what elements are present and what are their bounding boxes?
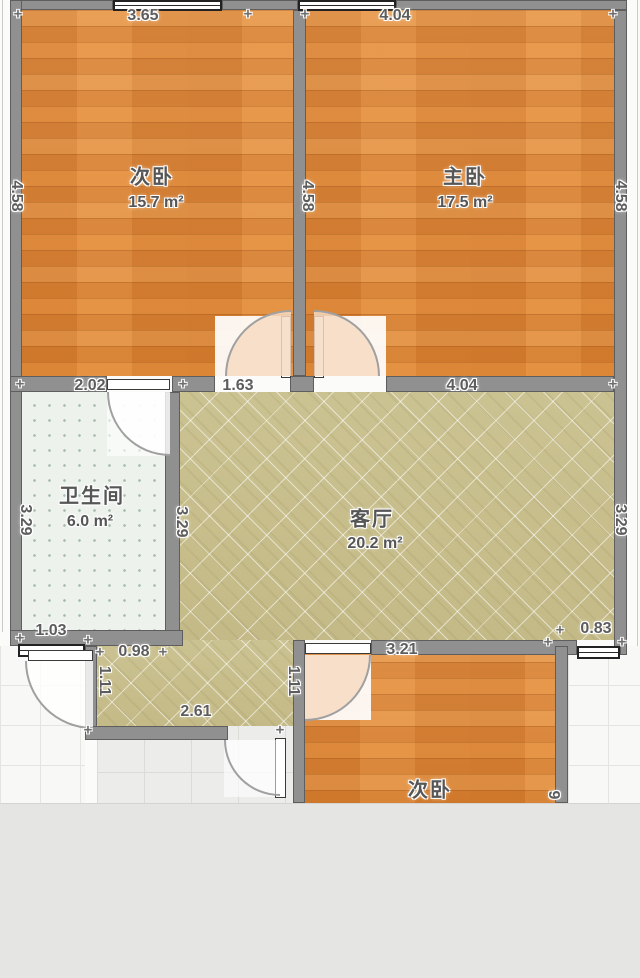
dim-label-living-right-height: 3.29 [611,504,629,535]
dimension-tick: + [618,634,626,650]
outside-right-floor [568,646,640,803]
dimension-tick: + [159,644,167,660]
room-label-bedroom-top-right: 主卧 [443,161,487,190]
dim-label-entry-left-height: 1.11 [95,666,113,696]
door-leaf [305,643,371,654]
dim-label-bedroom-bottom-height-partial: 9 [544,791,562,800]
extension-line [637,0,638,646]
area-label-bedroom-top-right: 17.5 m² [437,194,492,212]
dim-label-bathroom-width: 2.02 [74,377,105,395]
dim-label-bedroom-bottom-width: 3.21 [386,641,417,659]
door-leaf [107,379,170,390]
wall [555,646,568,803]
room-label-bedroom-bottom: 次卧 [408,774,452,803]
dim-label-bedroom-tl-width: 3.65 [127,7,158,25]
dimension-tick: + [96,644,104,660]
wall [85,726,228,740]
room-label-living-room: 客厅 [350,503,394,532]
dim-label-entry-bottom-width: 2.61 [180,703,211,721]
dimension-tick: + [556,622,564,638]
wall [10,0,113,10]
dimension-tick: + [16,630,24,646]
dim-label-right-wall-height: 4.58 [611,180,629,211]
dimension-tick: + [276,722,284,738]
dim-label-living-width: 4.04 [446,377,477,395]
area-label-living-room: 20.2 m² [347,535,402,553]
dim-label-bedroom-tr-width: 4.04 [379,7,410,25]
dim-label-entry-top-width: 0.98 [118,643,149,661]
wall [10,0,22,646]
window [577,646,620,659]
dimension-tick: + [544,634,552,650]
dim-label-bathroom-right-height: 3.29 [172,506,190,537]
dimension-tick: + [179,376,187,392]
dim-label-bathroom-bottom-width: 1.03 [35,622,66,640]
living-room-floor [180,392,614,640]
wall [293,640,305,803]
dimension-tick: + [14,6,22,22]
dimension-tick: + [16,376,24,392]
dim-label-left-wall-height: 4.58 [7,180,25,211]
wall [386,376,614,392]
wall [614,10,627,655]
wall [222,0,298,10]
dim-label-right-offset-width: 0.83 [580,620,611,638]
dimension-tick: + [244,6,252,22]
dim-label-hall-gap-width: 1.63 [222,377,253,395]
room-label-bathroom: 卫生间 [59,480,125,509]
dimension-tick: + [301,6,309,22]
dimension-tick: + [609,6,617,22]
dim-label-middle-wall-height: 4.58 [298,180,316,211]
dim-label-bathroom-left-height: 3.29 [16,504,34,535]
wall [290,376,314,392]
dimension-tick: + [84,632,92,648]
extension-line [2,0,3,632]
floor-plan: 次卧 15.7 m² 主卧 17.5 m² 卫生间 6.0 m² 客厅 20.2… [0,0,640,978]
cropped-bottom-area [0,803,640,978]
outside-strip-right [627,0,640,646]
dimension-tick: + [84,722,92,738]
dim-label-entry-right-height: 1.11 [284,666,302,696]
area-label-bedroom-top-left: 15.7 m² [128,194,183,212]
door-leaf [28,650,93,661]
wall [396,0,627,10]
dimension-tick: + [609,376,617,392]
room-label-bedroom-top-left: 次卧 [130,161,174,190]
area-label-bathroom: 6.0 m² [67,513,113,531]
